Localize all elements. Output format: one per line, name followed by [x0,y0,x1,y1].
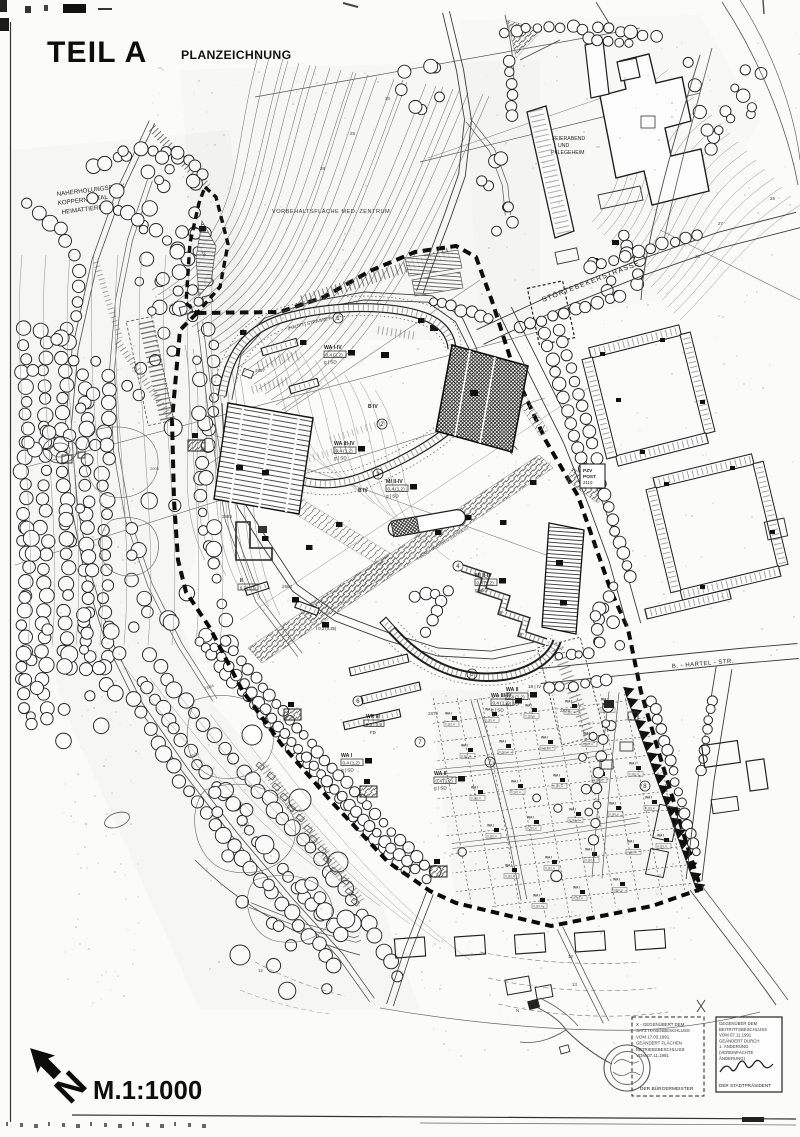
svg-text:B IV: B IV [368,404,378,410]
svg-text:FD: FD [370,730,376,735]
svg-text:0,3 | 0,6: 0,3 | 0,6 [240,586,256,591]
svg-text:MI II-IV: MI II-IV [386,479,403,485]
svg-text:18 | IV: 18 | IV [528,684,542,689]
svg-text:GEÄNDERT DURCH: GEÄNDERT DURCH [719,1038,759,1043]
svg-text:PLANZEICHNUNG: PLANZEICHNUNG [181,48,291,62]
svg-text:SATZ HASENBESCHLUSS: SATZ HASENBESCHLUSS [636,1028,690,1033]
svg-text:VOM 07.11.1991: VOM 07.11.1991 [719,1033,752,1038]
svg-text:X - GEGENÜBERT DEM: X - GEGENÜBERT DEM [636,1022,685,1027]
svg-text:2110: 2110 [583,480,593,485]
svg-text:0,4 (1,2): 0,4 (1,2) [477,580,495,585]
svg-text:GEGENÜBER DEM: GEGENÜBER DEM [719,1021,758,1026]
svg-text:WR III: WR III [366,714,380,720]
svg-text:M.1:1000: M.1:1000 [93,1077,202,1105]
svg-text:I 0,3 (0,35): I 0,3 (0,35) [316,626,337,631]
svg-text:BEITRITTSBESCHLUSS: BEITRITTSBESCHLUSS [719,1027,767,1032]
svg-text:26: 26 [770,196,776,201]
svg-text:0,4 (1,2): 0,4 (1,2) [326,352,344,357]
svg-text:ÄNDERUNG): ÄNDERUNG) [719,1056,746,1061]
svg-text:(VEREINFACHTE: (VEREINFACHTE [719,1050,754,1055]
svg-text:PZV: PZV [583,468,593,474]
svg-text:2885: 2885 [222,514,233,519]
svg-text:g | SD: g | SD [386,494,399,499]
svg-text:WA I-IV: WA I-IV [324,345,342,351]
svg-text:GEÄNDERT FLÄCHEN: GEÄNDERT FLÄCHEN [636,1041,682,1046]
svg-text:0,4 (1,2): 0,4 (1,2) [388,486,406,491]
svg-text:VOM 07.11.1991: VOM 07.11.1991 [636,1053,669,1058]
svg-text:1. ÄNDERUNG: 1. ÄNDERUNG [719,1044,749,1049]
svg-text:N: N [516,1008,519,1013]
svg-text:0,4 (1,2): 0,4 (1,2) [343,760,361,765]
svg-text:MI II-IV: MI II-IV [475,573,492,579]
svg-text:g | SD: g | SD [341,768,354,773]
svg-text:TEIL A: TEIL A [47,36,148,69]
svg-text:VOM 17.03.1991: VOM 17.03.1991 [636,1034,670,1039]
svg-text:g | SD: g | SD [475,588,488,593]
svg-text:g | SD: g | SD [324,360,337,365]
svg-text:DER BÜRGERMEISTER: DER BÜRGERMEISTER [640,1085,694,1092]
svg-text:g | SD: g | SD [334,456,347,461]
svg-text:0,4 (1,2): 0,4 (1,2) [336,448,354,453]
svg-text:DER STADTPRÄSIDENT: DER STADTPRÄSIDENT [719,1082,771,1088]
svg-text:27: 27 [718,221,724,226]
svg-text:WA I: WA I [341,753,353,759]
svg-text:WA III-IV: WA III-IV [334,441,355,447]
svg-text:13: 13 [572,982,578,987]
